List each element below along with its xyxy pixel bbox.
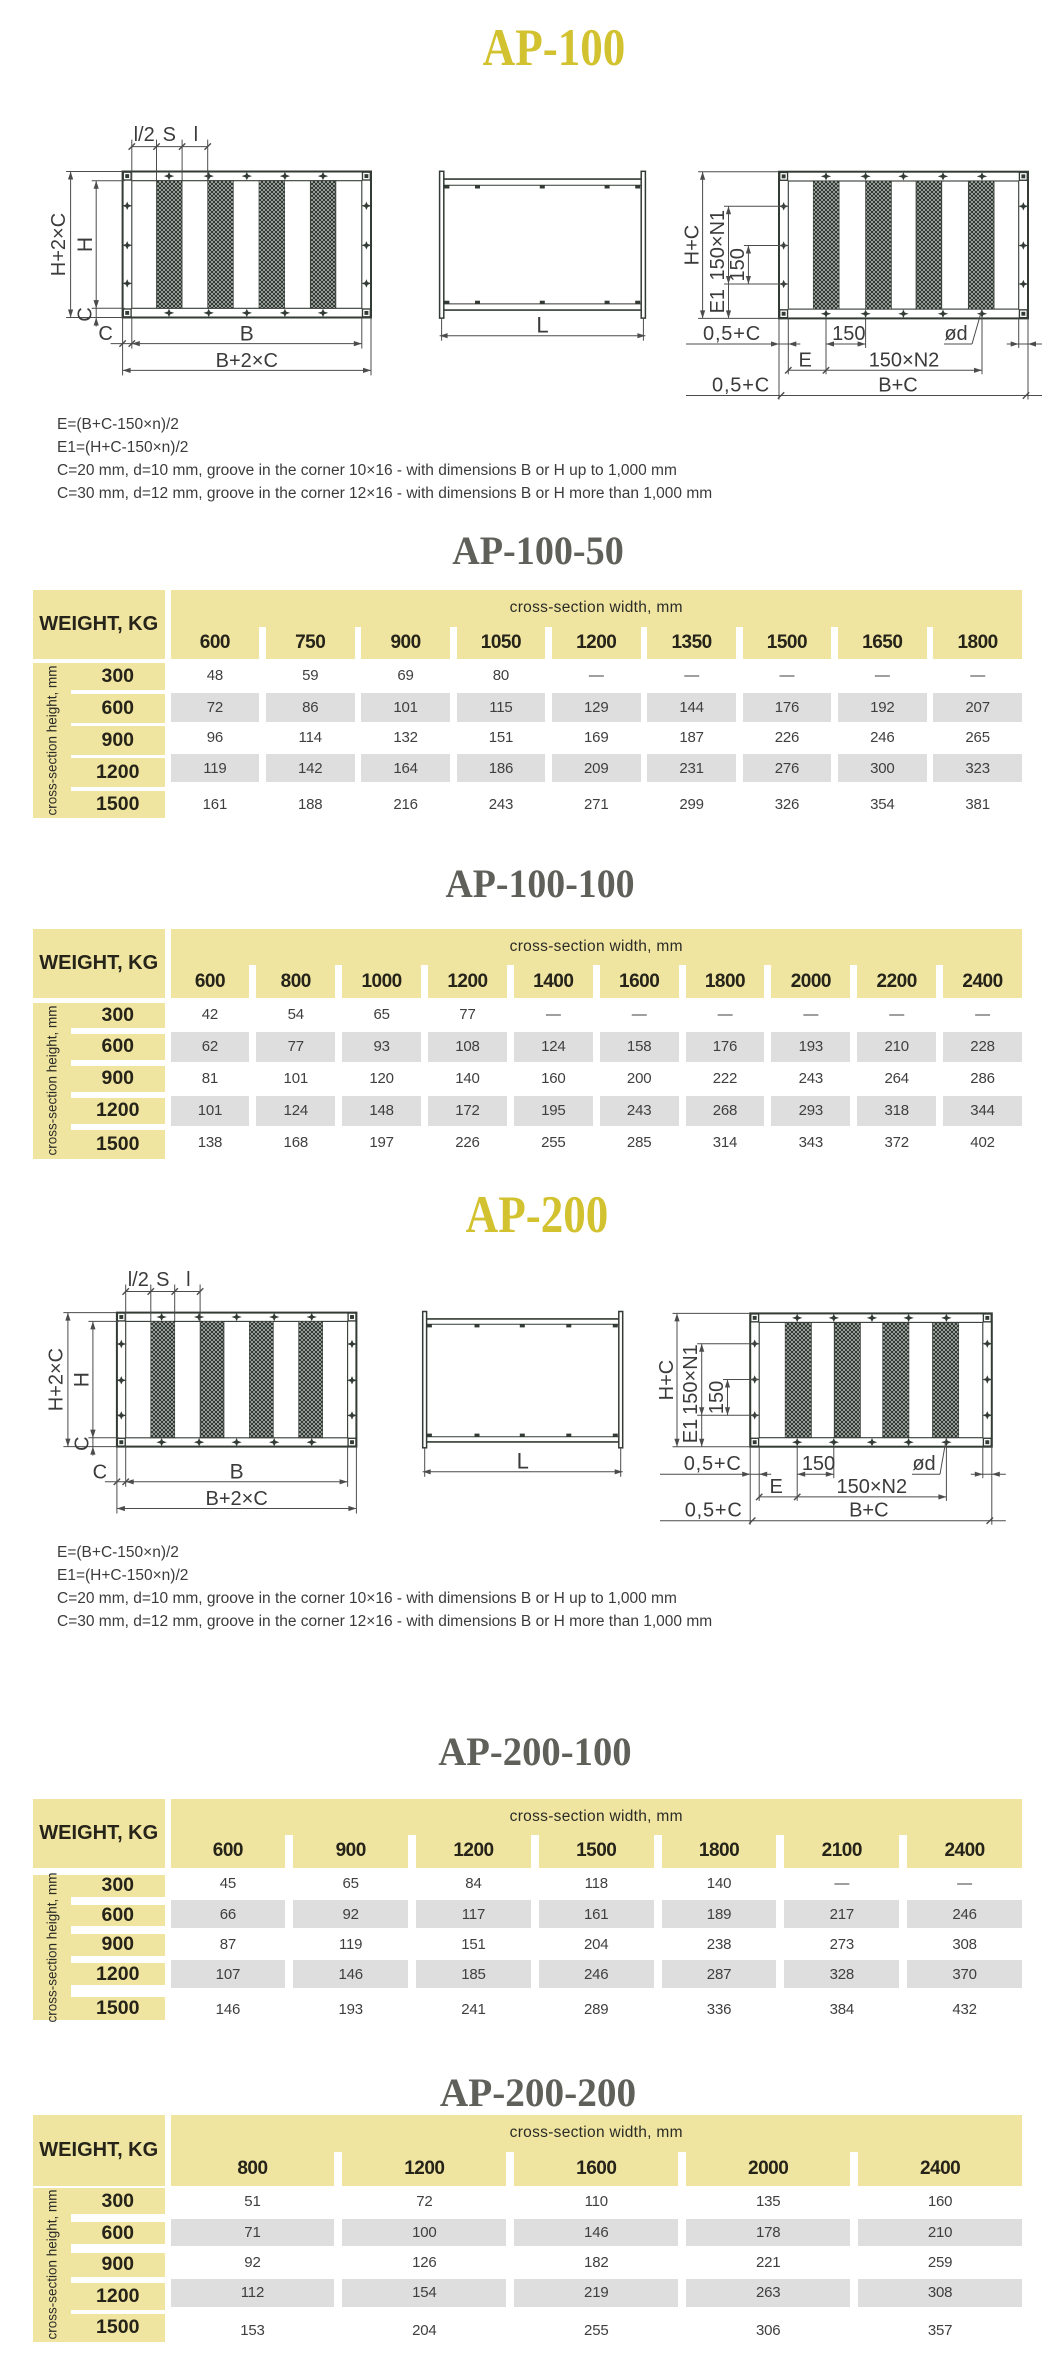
svg-text:l/2: l/2 [134, 124, 155, 146]
svg-text:H: H [71, 1372, 94, 1387]
svg-text:H+C: H+C [656, 1360, 678, 1401]
svg-text:150: 150 [706, 1381, 728, 1414]
svg-text:E1: E1 [707, 289, 729, 313]
svg-text:E: E [798, 349, 811, 371]
svg-text:H: H [74, 237, 97, 252]
svg-text:E: E [770, 1476, 783, 1498]
svg-text:150×N2: 150×N2 [836, 1476, 907, 1498]
svg-text:l: l [186, 1269, 190, 1291]
svg-text:B+2×C: B+2×C [216, 350, 278, 372]
svg-text:150: 150 [727, 248, 749, 281]
svg-text:S: S [156, 1269, 169, 1291]
svg-text:0,5+C: 0,5+C [703, 323, 761, 345]
svg-text:H+2×C: H+2×C [45, 1348, 67, 1411]
svg-text:H+2×C: H+2×C [48, 213, 70, 276]
svg-text:C: C [93, 1461, 107, 1483]
svg-text:S: S [163, 124, 176, 146]
svg-text:C: C [98, 323, 112, 345]
svg-text:150: 150 [802, 1453, 835, 1475]
svg-text:B+C: B+C [878, 375, 917, 397]
svg-text:l/2: l/2 [128, 1269, 149, 1291]
svg-text:B+2×C: B+2×C [206, 1488, 268, 1510]
svg-text:H+C: H+C [682, 225, 704, 266]
svg-text:l: l [194, 124, 198, 146]
svg-text:C: C [71, 1436, 93, 1450]
svg-text:ød: ød [944, 323, 967, 345]
svg-text:150: 150 [832, 323, 865, 345]
svg-text:150×N1: 150×N1 [680, 1344, 702, 1415]
svg-text:0,5+C: 0,5+C [712, 375, 770, 397]
svg-text:B: B [240, 322, 254, 345]
svg-text:B+C: B+C [849, 1500, 888, 1522]
svg-text:0,5+C: 0,5+C [685, 1500, 743, 1522]
svg-text:ød: ød [912, 1453, 935, 1475]
svg-text:L: L [517, 1449, 529, 1474]
svg-text:E1: E1 [680, 1419, 702, 1443]
svg-text:C: C [75, 307, 97, 321]
svg-text:150×N1: 150×N1 [707, 210, 729, 281]
svg-text:L: L [536, 312, 548, 337]
svg-text:B: B [230, 1461, 244, 1484]
svg-text:0,5+C: 0,5+C [684, 1453, 742, 1475]
svg-text:150×N2: 150×N2 [869, 349, 940, 371]
